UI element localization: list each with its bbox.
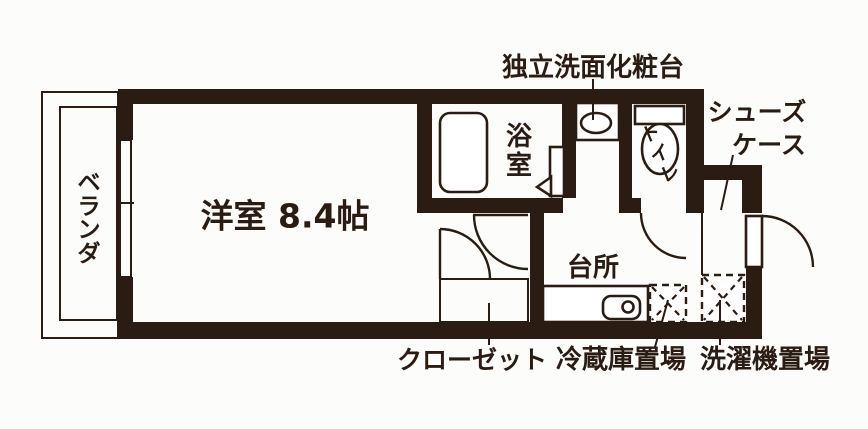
- label-bathroom-char-1: 浴: [506, 122, 533, 152]
- label-veranda-char-1: ベ: [78, 170, 101, 196]
- washing-machine-space-box: [702, 275, 744, 322]
- wall-bottom: [118, 322, 762, 339]
- toilet-tank: [635, 106, 684, 124]
- label-closet: クローゼット: [397, 346, 547, 375]
- kitchen-faucet: [623, 302, 634, 313]
- floor-plan-page: 洋室 8.4帖 独立洗面化粧台 シューズ ケース 台所 クローゼット 冷蔵庫置場…: [0, 0, 868, 429]
- bathroom-door-fold-arrow: [537, 177, 551, 196]
- wall-toilet-left: [619, 104, 632, 213]
- label-veranda-char-3: ン: [78, 217, 101, 243]
- washing-machine-outline: [702, 275, 744, 322]
- label-veranda: ベ ラ ン ダ: [78, 170, 101, 267]
- bathtub: [440, 113, 487, 192]
- label-washing-machine-space: 洗濯機置場: [700, 345, 830, 375]
- label-bathroom-char-2: 室: [506, 150, 532, 181]
- label-veranda-char-4: ダ: [78, 240, 101, 267]
- label-bathroom: 浴 室: [506, 122, 533, 181]
- label-shoe-case-line2: ケース: [732, 131, 806, 160]
- closet-door-swing-arc: [440, 229, 490, 279]
- wall-right-below-entrance: [746, 267, 762, 339]
- wall-mainroom-right: [417, 104, 432, 213]
- label-kitchen: 台所: [567, 252, 619, 283]
- label-shoe-case-line1: シューズ: [708, 98, 807, 127]
- kitchen-door-swing-arc: [474, 215, 528, 269]
- toilet-door-swing-arc: [641, 213, 686, 258]
- wall-toilet-right: [686, 104, 704, 213]
- wall-left-upper: [118, 89, 133, 140]
- shoecase-leader: [721, 155, 733, 210]
- label-refrigerator-space: 冷蔵庫置場: [556, 344, 686, 375]
- window-glass-lines: [120, 140, 131, 277]
- wall-shoecase-right: [742, 180, 762, 213]
- entrance-door-swing-arc: [762, 216, 813, 267]
- wall-below-bathroom: [417, 198, 563, 213]
- sliding-window: [117, 140, 134, 277]
- entrance-door-leaf: [746, 216, 762, 267]
- label-vanity: 独立洗面化粧台: [502, 52, 684, 83]
- label-western-room: 洋室 8.4帖: [201, 197, 370, 236]
- washbasin-bowl: [581, 113, 611, 133]
- wall-shoecase-top: [704, 165, 762, 180]
- closet-body: [440, 279, 528, 322]
- wall-toilet-door-stub: [632, 198, 641, 213]
- floor-plan: 洋室 8.4帖 独立洗面化粧台 シューズ ケース 台所 クローゼット 冷蔵庫置場…: [0, 0, 868, 429]
